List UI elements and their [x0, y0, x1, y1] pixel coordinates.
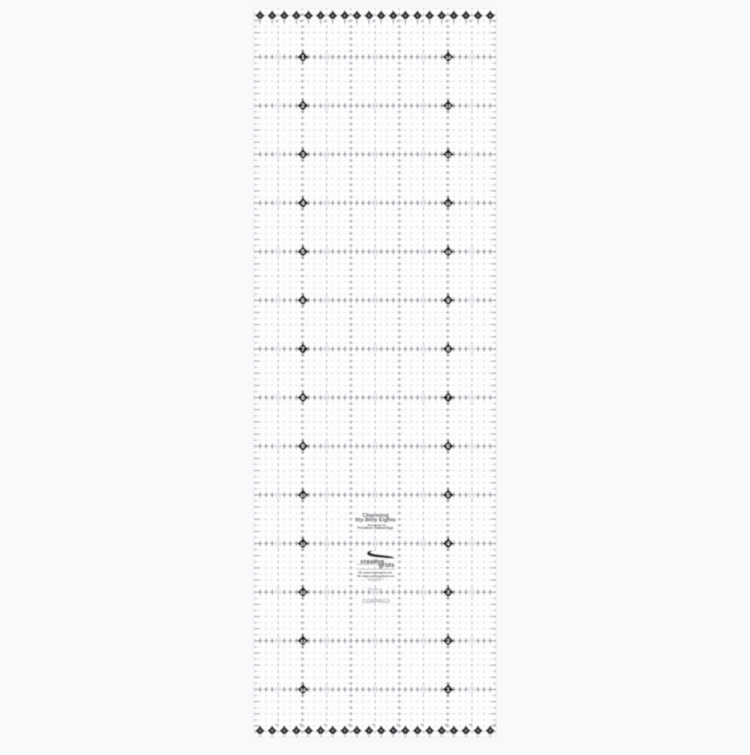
svg-text:1½: 1½ [421, 396, 426, 400]
svg-text:2½: 2½ [373, 445, 378, 449]
svg-text:½: ½ [471, 347, 474, 351]
svg-text:2½: 2½ [373, 55, 378, 59]
svg-text:½: ½ [471, 299, 474, 303]
svg-text:US: www.creativegrids.com: US: www.creativegrids.com [358, 570, 393, 574]
svg-text:2½: 2½ [373, 250, 378, 254]
svg-text:1½: 1½ [421, 688, 426, 692]
svg-text:½: ½ [277, 347, 280, 351]
svg-text:½: ½ [277, 299, 280, 303]
svg-text:1½: 1½ [324, 688, 329, 692]
svg-text:½: ½ [277, 201, 280, 205]
svg-text:1½: 1½ [421, 590, 426, 594]
svg-text:1½: 1½ [324, 445, 329, 449]
svg-text:2½: 2½ [373, 493, 378, 497]
svg-text:1½: 1½ [421, 201, 426, 205]
svg-text:1½: 1½ [421, 250, 426, 254]
svg-text:½: ½ [277, 250, 280, 254]
svg-text:1½: 1½ [324, 104, 329, 108]
svg-text:2½: 2½ [373, 201, 378, 205]
svg-text:½: ½ [277, 396, 280, 400]
svg-text:14: 14 [445, 55, 451, 61]
svg-text:1½: 1½ [421, 542, 426, 546]
svg-text:1½: 1½ [421, 445, 426, 449]
svg-text:½: ½ [471, 688, 474, 692]
svg-text:½: ½ [277, 493, 280, 497]
svg-text:1½: 1½ [421, 104, 426, 108]
svg-text:½: ½ [471, 201, 474, 205]
svg-text:1½: 1½ [421, 347, 426, 351]
svg-text:2½: 2½ [373, 590, 378, 594]
svg-text:1½: 1½ [324, 299, 329, 303]
svg-text:1½: 1½ [324, 347, 329, 351]
svg-text:½: ½ [471, 639, 474, 643]
svg-text:½: ½ [277, 590, 280, 594]
svg-text:1½: 1½ [324, 201, 329, 205]
svg-text:10: 10 [300, 493, 306, 499]
svg-text:11: 11 [446, 201, 451, 207]
svg-text:2½: 2½ [373, 299, 378, 303]
svg-text:12: 12 [445, 152, 451, 158]
svg-text:2½: 2½ [373, 688, 378, 692]
svg-text:½: ½ [277, 688, 280, 692]
svg-text:2½: 2½ [373, 104, 378, 108]
svg-text:Primitive Gatherings: Primitive Gatherings [357, 526, 393, 530]
svg-text:2½: 2½ [373, 347, 378, 351]
svg-text:CGRPRG3: CGRPRG3 [362, 599, 390, 605]
svg-text:13: 13 [445, 104, 451, 110]
svg-text:"This side up": "This side up" [367, 588, 382, 591]
svg-text:1½: 1½ [421, 639, 426, 643]
svg-text:½: ½ [471, 104, 474, 108]
svg-text:1½: 1½ [421, 55, 426, 59]
svg-text:10: 10 [445, 250, 451, 256]
svg-text:11: 11 [300, 542, 305, 548]
svg-text:½: ½ [277, 445, 280, 449]
svg-text:1½: 1½ [421, 493, 426, 497]
svg-text:1½: 1½ [324, 250, 329, 254]
svg-text:½: ½ [471, 493, 474, 497]
svg-text:½: ½ [277, 542, 280, 546]
svg-text:½: ½ [471, 396, 474, 400]
svg-text:1½: 1½ [421, 299, 426, 303]
svg-text:½: ½ [471, 445, 474, 449]
svg-text:1½: 1½ [324, 396, 329, 400]
svg-text:2½: 2½ [373, 639, 378, 643]
svg-text:½: ½ [471, 153, 474, 157]
svg-text:1½: 1½ [324, 542, 329, 546]
svg-text:13: 13 [300, 639, 306, 645]
svg-text:12: 12 [300, 590, 306, 596]
svg-text:UK: www.creativegridsuk.com: UK: www.creativegridsuk.com [357, 574, 395, 578]
svg-text:½: ½ [471, 55, 474, 59]
svg-text:1½: 1½ [324, 493, 329, 497]
svg-text:1½: 1½ [324, 55, 329, 59]
svg-text:grids: grids [379, 562, 395, 569]
svg-text:© Creative Grids UK Ltd: © Creative Grids UK Ltd [366, 577, 384, 580]
svg-text:½: ½ [471, 590, 474, 594]
svg-text:2½: 2½ [373, 153, 378, 157]
svg-text:½: ½ [277, 153, 280, 157]
svg-text:½: ½ [471, 542, 474, 546]
svg-text:1½: 1½ [324, 639, 329, 643]
svg-text:1½: 1½ [324, 153, 329, 157]
svg-text:½: ½ [277, 639, 280, 643]
svg-text:14: 14 [300, 687, 306, 693]
svg-text:½: ½ [277, 55, 280, 59]
svg-text:1½: 1½ [421, 153, 426, 157]
svg-text:2½: 2½ [373, 542, 378, 546]
svg-text:½: ½ [277, 104, 280, 108]
svg-text:½: ½ [471, 250, 474, 254]
svg-text:2½: 2½ [373, 396, 378, 400]
svg-text:1½: 1½ [324, 590, 329, 594]
